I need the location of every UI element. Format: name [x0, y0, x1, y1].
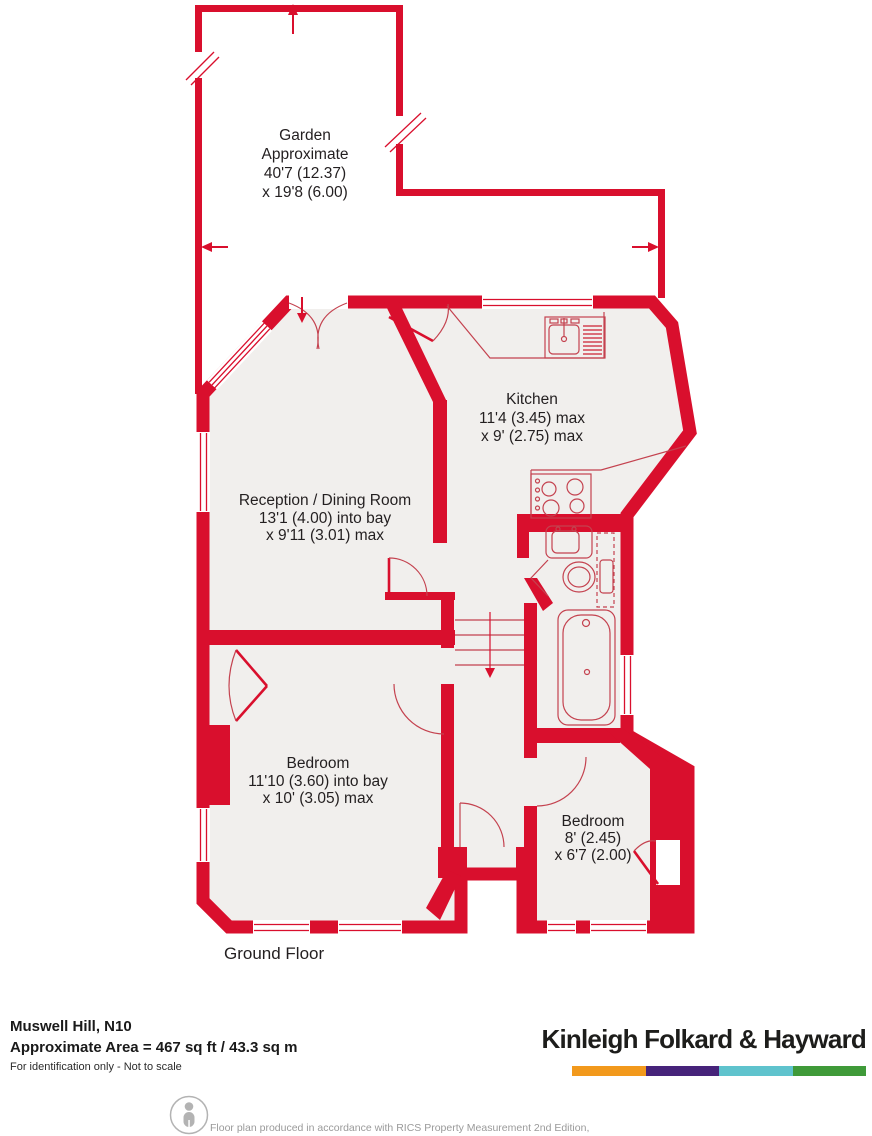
garden-arrow-right-icon	[632, 242, 659, 252]
brand-stripe-green	[793, 1066, 867, 1076]
floor-plan-page: Garden Approximate 40'7 (12.37) x 19'8 (…	[0, 0, 872, 1136]
brand-stripe-teal	[719, 1066, 793, 1076]
disclaimer-text: For identification only - Not to scale	[10, 1061, 182, 1073]
legal-line1: Floor plan produced in accordance with R…	[210, 1121, 691, 1135]
garden-gate-left-icon	[186, 52, 219, 85]
garden-arrow-left-icon	[201, 242, 228, 252]
kitchen-label-line1: Kitchen	[506, 391, 558, 408]
bedroom2-label: Bedroom 8' (2.45) x 6'7 (2.00)	[554, 813, 631, 864]
garden-label-line1: Garden	[279, 127, 331, 144]
reception-label-line2: 13'1 (4.00) into bay	[259, 510, 391, 527]
garden-label-line3: 40'7 (12.37)	[264, 165, 346, 182]
bedroom2-label-line1: Bedroom	[562, 813, 625, 830]
brand-stripe-orange	[572, 1066, 646, 1076]
brand-stripe-purple	[646, 1066, 720, 1076]
garden-gate-top-icon	[385, 113, 426, 152]
property-address: Muswell Hill, N10	[10, 1018, 132, 1035]
brand-stripe	[572, 1066, 866, 1076]
legal-text: Floor plan produced in accordance with R…	[210, 1093, 691, 1136]
bathroom-window-icon	[620, 655, 634, 715]
bedroom2-bay-window-icon	[547, 920, 647, 934]
approximate-area: Approximate Area = 467 sq ft / 43.3 sq m	[10, 1039, 297, 1056]
garden-label-line4: x 19'8 (6.00)	[262, 184, 348, 201]
bedroom1-label-line1: Bedroom	[287, 755, 350, 772]
kitchen-label-line3: x 9' (2.75) max	[481, 428, 583, 445]
reception-label-line3: x 9'11 (3.01) max	[266, 527, 384, 544]
bedroom2-label-line2: 8' (2.45)	[565, 830, 621, 847]
garden-label-line2: Approximate	[261, 146, 348, 163]
garden-label: Garden Approximate 40'7 (12.37) x 19'8 (…	[261, 127, 348, 201]
brand-logo: Kinleigh Folkard & Hayward	[542, 1024, 867, 1055]
person-icon	[168, 1094, 210, 1136]
bedroom1-label-line3: x 10' (3.05) max	[263, 790, 374, 807]
reception-window-icon	[196, 432, 210, 512]
bedroom2-label-line3: x 6'7 (2.00)	[554, 847, 631, 864]
kitchen-label-line2: 11'4 (3.45) max	[479, 410, 585, 427]
kitchen-window-icon	[482, 295, 593, 309]
reception-label-line1: Reception / Dining Room	[239, 492, 411, 509]
floor-plan-canvas: Garden Approximate 40'7 (12.37) x 19'8 (…	[0, 0, 872, 1010]
bedroom1-label-line2: 11'10 (3.60) into bay	[248, 773, 388, 790]
floor-name-label: Ground Floor	[224, 944, 324, 963]
bedroom1-window-icon	[196, 808, 210, 862]
